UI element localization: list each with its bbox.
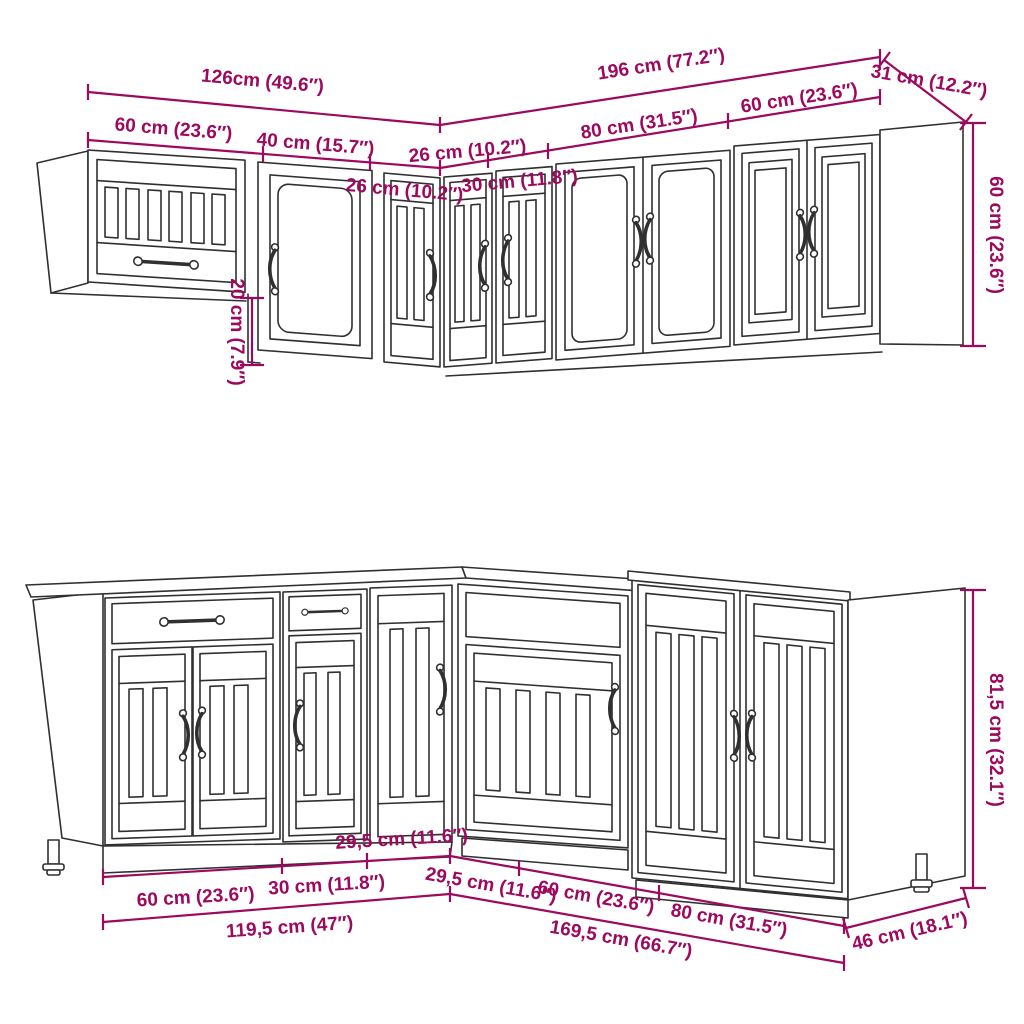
kitchen-dimension-drawing: 126cm (49.6″) 196 cm (77.2″) 31 cm (12.2… <box>0 0 1024 1024</box>
wall-cabinet-80cm <box>556 150 730 360</box>
cabinet-leg <box>48 840 59 864</box>
cabinet-leg-foot <box>911 880 932 887</box>
base-cabinet-80cm <box>632 578 848 899</box>
base-cabinet-corner-29-5cm <box>370 585 452 845</box>
dim-base-height: 81,5 cm (32.1″) <box>985 673 1006 807</box>
wall-cabinet-60cm-left <box>88 150 245 292</box>
cabinet-leg-foot <box>43 864 64 870</box>
base-cabinet-30cm <box>283 589 367 842</box>
dim-upper-height: 60 cm (23.6″) <box>985 176 1006 294</box>
base-cabinet-60cm-left <box>105 592 280 845</box>
product-dimension-diagram: 126cm (49.6″) 196 cm (77.2″) 31 cm (12.2… <box>0 0 1024 1024</box>
cabinet-leg <box>916 854 927 880</box>
wall-cabinet-60cm-right <box>734 135 880 345</box>
base-cabinet-sink-60cm <box>458 584 628 848</box>
dim-upper-step: 20 cm (7.9″) <box>226 278 247 385</box>
base-end-panel <box>848 588 965 900</box>
wall-cabinet-30cm <box>496 167 552 363</box>
